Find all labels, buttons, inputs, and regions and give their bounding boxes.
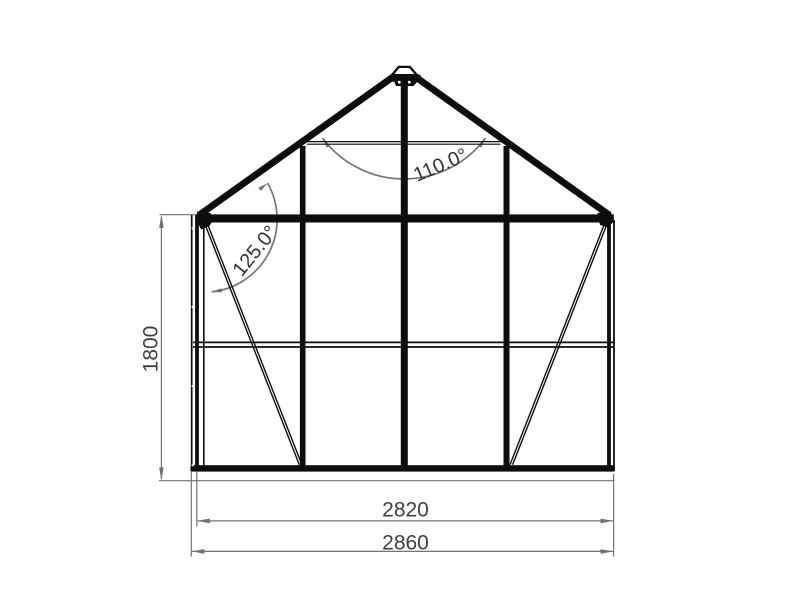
svg-text:2860: 2860 (382, 532, 429, 555)
svg-text:2820: 2820 (382, 499, 429, 522)
svg-text:1800: 1800 (140, 326, 163, 373)
